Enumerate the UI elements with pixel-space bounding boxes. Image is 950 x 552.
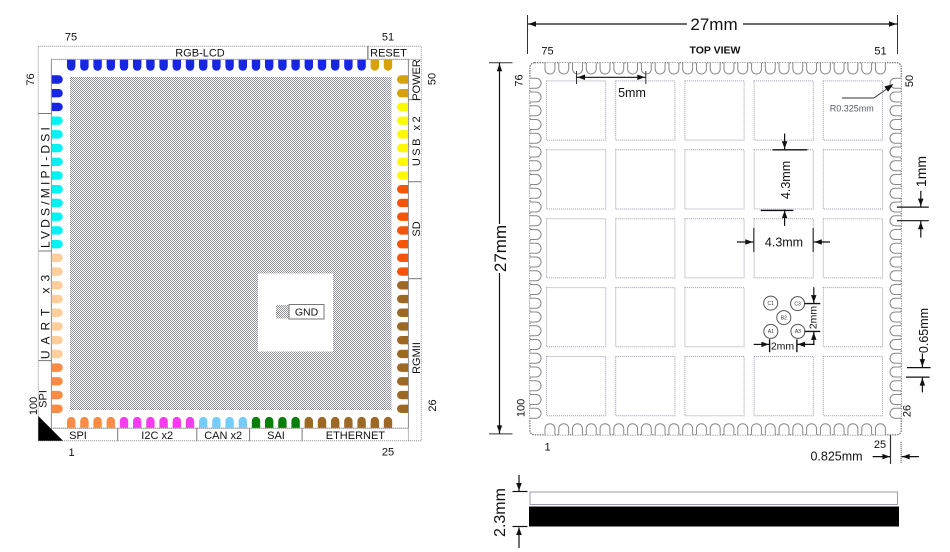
svg-text:TOP VIEW: TOP VIEW [690, 45, 741, 57]
svg-text:SPI: SPI [69, 430, 87, 442]
svg-text:25: 25 [874, 439, 886, 451]
svg-text:1mm: 1mm [913, 156, 929, 187]
svg-text:26: 26 [902, 405, 914, 417]
svg-text:POWER: POWER [411, 59, 423, 101]
svg-text:50: 50 [904, 75, 916, 87]
svg-text:51: 51 [874, 46, 886, 58]
svg-text:RESET: RESET [370, 47, 407, 59]
svg-text:ETHERNET: ETHERNET [326, 430, 386, 442]
svg-text:2mm: 2mm [771, 341, 795, 353]
svg-text:CAN x2: CAN x2 [204, 430, 242, 442]
svg-text:A1: A1 [768, 329, 774, 335]
svg-text:76: 76 [514, 74, 526, 86]
svg-text:27mm: 27mm [690, 15, 737, 34]
svg-text:100: 100 [28, 397, 40, 415]
svg-text:SAI: SAI [267, 430, 285, 442]
svg-text:0.65mm: 0.65mm [917, 308, 931, 353]
svg-text:LVDS/MIPI-DSI: LVDS/MIPI-DSI [39, 124, 53, 248]
svg-text:100: 100 [516, 399, 528, 417]
svg-text:76: 76 [25, 73, 37, 85]
svg-text:51: 51 [382, 32, 394, 44]
svg-text:4.3mm: 4.3mm [765, 236, 803, 250]
svg-text:50: 50 [427, 73, 439, 85]
svg-text:75: 75 [65, 32, 77, 44]
svg-text:27mm: 27mm [491, 225, 510, 272]
svg-text:1: 1 [544, 442, 550, 454]
svg-text:5mm: 5mm [618, 86, 646, 100]
svg-text:R0.325mm: R0.325mm [830, 104, 874, 114]
svg-text:RGB-LCD: RGB-LCD [175, 47, 225, 59]
svg-text:SD: SD [411, 221, 423, 236]
svg-text:I2C x2: I2C x2 [141, 430, 173, 442]
svg-text:2.3mm: 2.3mm [492, 488, 509, 537]
svg-text:B2: B2 [781, 315, 787, 321]
svg-text:26: 26 [427, 399, 439, 411]
svg-text:USB x2: USB x2 [411, 114, 423, 166]
svg-text:1: 1 [68, 447, 74, 459]
svg-text:RGMII: RGMII [411, 342, 423, 374]
svg-text:A3: A3 [795, 329, 801, 335]
svg-text:2mm: 2mm [808, 306, 820, 330]
svg-text:25: 25 [382, 447, 394, 459]
svg-text:4.3mm: 4.3mm [779, 161, 793, 199]
svg-text:0.825mm: 0.825mm [810, 450, 862, 464]
svg-text:75: 75 [541, 46, 553, 58]
svg-text:C1: C1 [767, 301, 774, 307]
svg-text:UART x3: UART x3 [39, 269, 53, 359]
svg-text:GND: GND [295, 307, 319, 319]
svg-text:C3: C3 [794, 301, 801, 307]
